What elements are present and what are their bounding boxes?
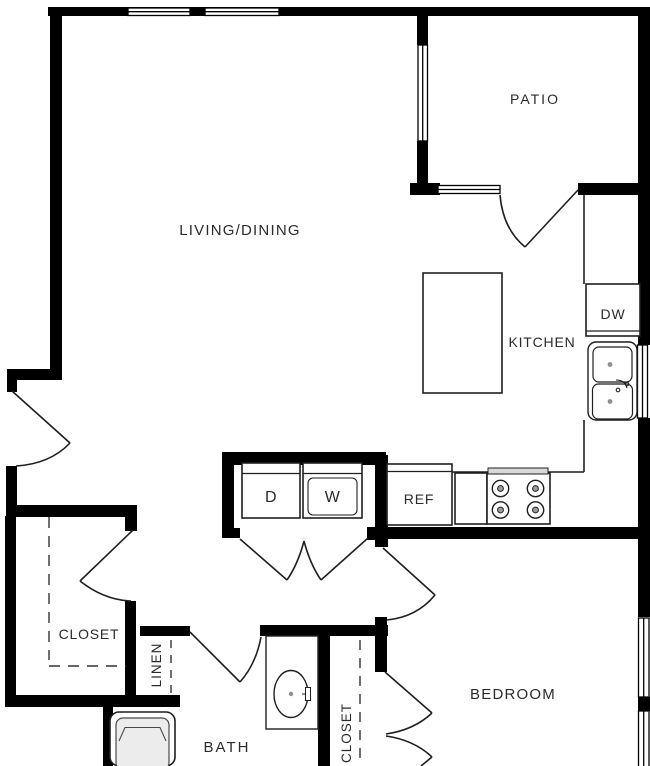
- bathtub: [110, 712, 175, 766]
- label-refrigerator: REF: [404, 491, 434, 507]
- label-dryer: D: [265, 489, 277, 506]
- floor-plan: LIVING/DINING PATIO KITCHEN BEDROOM BATH…: [0, 0, 650, 766]
- wall-bedroom-closet: [375, 617, 387, 672]
- window-patio-bottom: [438, 186, 500, 194]
- label-dishwasher: DW: [601, 306, 626, 322]
- patio-door: [500, 190, 578, 247]
- wall-entry-jamb: [7, 380, 17, 392]
- label-living-dining: LIVING/DINING: [179, 222, 300, 239]
- stove-back-strip: [488, 468, 548, 474]
- bedroom-door: [383, 548, 435, 620]
- wall-closet-top: [6, 505, 137, 517]
- wall-linen-top: [140, 626, 190, 636]
- window-patio-left: [418, 45, 428, 141]
- wall-closet-jamb: [125, 517, 137, 531]
- wall-laundry-left-foot: [222, 528, 240, 538]
- stove-side-panel: [455, 473, 487, 524]
- label-closet: CLOSET: [59, 626, 120, 642]
- wall-right-mullion: [638, 697, 650, 711]
- wall-left-upper: [50, 7, 62, 380]
- window-bedroom-1: [639, 618, 650, 697]
- walls: [5, 7, 650, 766]
- label-linen: LINEN: [149, 643, 164, 688]
- wall-closet-right: [125, 601, 136, 701]
- label-bath: BATH: [204, 739, 251, 756]
- label-bedroom-closet: CLOSET: [339, 703, 354, 763]
- windows: [128, 8, 649, 766]
- wall-vanity-right: [318, 625, 330, 766]
- bath-vanity: [266, 636, 318, 729]
- window-kitchen-sink: [638, 345, 648, 418]
- label-bedroom: BEDROOM: [470, 686, 556, 703]
- bedroom-closet-doors: [385, 672, 432, 766]
- wall-entry-jog: [7, 369, 62, 380]
- label-kitchen: KITCHEN: [508, 334, 575, 350]
- wall-right-patio: [638, 7, 650, 195]
- labels: LIVING/DINING PATIO KITCHEN BEDROOM BATH…: [59, 91, 626, 763]
- label-patio: PATIO: [510, 91, 560, 107]
- label-washer: W: [325, 489, 341, 506]
- laundry-double-doors: [240, 538, 368, 580]
- wall-closet-bottom: [5, 695, 180, 707]
- floor-plan-drawing: LIVING/DINING PATIO KITCHEN BEDROOM BATH…: [0, 0, 650, 766]
- bath-door: [190, 632, 261, 682]
- window-living-1: [128, 8, 190, 16]
- wall-bedroom-top: [367, 527, 650, 539]
- wall-left-lower: [5, 516, 16, 707]
- wall-patio-bottom-right: [578, 183, 650, 195]
- kitchen-island: [423, 273, 502, 393]
- wall-right-mid: [638, 418, 650, 617]
- window-bedroom-2: [639, 711, 650, 766]
- kitchen-sink: [588, 342, 637, 420]
- wall-patio-bottom-left: [410, 183, 440, 195]
- entry-door: [12, 391, 70, 466]
- window-living-2: [205, 8, 279, 16]
- wall-patio-left-upper: [417, 14, 428, 45]
- closet-door: [80, 530, 133, 601]
- stove: [455, 468, 550, 524]
- wall-laundry-left: [222, 452, 234, 538]
